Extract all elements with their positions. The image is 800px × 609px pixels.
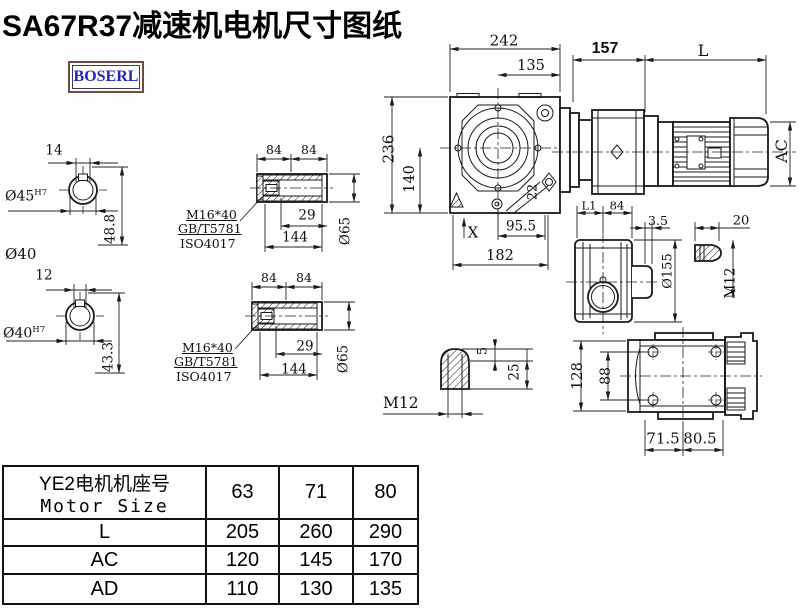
dim-flange-l1: L1 (582, 200, 597, 212)
dim-front-height: 236 (382, 135, 397, 164)
dim-bottom-height: 128 (571, 362, 586, 390)
dim-hollow-b-std1: GB/T5781 (174, 356, 238, 369)
dim-hollow-a-seg1: 84 (266, 144, 282, 157)
table-col-80: 80 (353, 466, 418, 519)
table-cell: 120 (206, 546, 279, 574)
table-cell: 135 (353, 574, 418, 604)
dim-shaft-b-bore: Ø40H7 (3, 326, 45, 341)
dim-hollow-b-dia: Ø65 (337, 345, 351, 373)
view-motor-side (552, 55, 796, 194)
table-cell: 205 (206, 519, 279, 546)
dim-hollow-a-std1: GB/T5781 (178, 223, 242, 236)
dim-shaft-b-height: 43.3 (102, 342, 116, 372)
dim-flange-dia: Ø155 (662, 253, 675, 288)
table-cell: 260 (279, 519, 353, 546)
dim-shaft-b-key-width: 12 (35, 269, 52, 283)
dim-front-center-bottom: 140 (403, 165, 418, 193)
page-title: SA67R37减速机电机尺寸图纸 (2, 1, 402, 45)
drawing-canvas: SA67R37减速机电机尺寸图纸 BOSERL 14 Ø45H7 48.8 Ø4… (0, 0, 800, 609)
table-header-cn: YE2电机机座号 (4, 469, 205, 496)
table-header-cell: YE2电机机座号 Motor Size (3, 466, 206, 519)
dim-hollow-a-dia: Ø65 (339, 217, 353, 245)
dim-plug-tip: 5 (477, 347, 490, 355)
table-row: AC 120 145 170 (3, 546, 418, 574)
dim-plug-thread-len: 25 (508, 363, 522, 380)
dim-motor-adapter-len: 157 (592, 40, 619, 58)
dim-plug-thread: M12 (383, 396, 419, 412)
dim-flange-cap-len: 20 (733, 215, 750, 228)
dim-hollow-b-std2: ISO4017 (176, 371, 232, 384)
dim-flange-thread: M12 (724, 267, 738, 298)
dim-flange-lip: 3.5 (648, 215, 668, 228)
dim-shaft-a-dia: Ø40 (5, 247, 36, 262)
brand-logo: BOSERL (72, 65, 140, 89)
dim-motor-len: L (698, 43, 709, 59)
table-row-label: AD (3, 574, 206, 604)
dim-bottom-left: 71.5 (646, 432, 679, 447)
table-cell: 170 (353, 546, 418, 574)
table-row-label: AC (3, 546, 206, 574)
dim-shaft-a-height: 48.8 (104, 214, 118, 244)
dim-hollow-b-screw: M16*40 (182, 342, 233, 355)
table-row: L 205 260 290 (3, 519, 418, 546)
table-cell: 145 (279, 546, 353, 574)
dim-motor-dia: AC (774, 139, 790, 163)
table-cell: 130 (279, 574, 353, 604)
dim-bottom-right: 80.5 (683, 432, 716, 447)
table-col-63: 63 (206, 466, 279, 519)
dim-hollow-a-depth: 29 (298, 209, 315, 223)
dim-front-rib: 22 (527, 184, 540, 201)
table-row-label: L (3, 519, 206, 546)
dim-hollow-a-seg2: 84 (301, 144, 317, 157)
table-cell: 290 (353, 519, 418, 546)
dim-hollow-a-screw: M16*40 (186, 209, 237, 222)
dim-front-foot-right: 95.5 (506, 220, 536, 234)
dim-bottom-inner: 88 (599, 367, 613, 385)
dim-hollow-b-length: 144 (281, 363, 307, 377)
table-row: AD 110 130 135 (3, 574, 418, 604)
dim-hollow-b-seg1: 84 (261, 272, 277, 285)
table-col-71: 71 (279, 466, 353, 519)
dim-hollow-a-length: 144 (282, 231, 308, 245)
dim-flange-seg: 84 (610, 200, 625, 212)
dim-front-foot-width: 182 (486, 249, 514, 264)
dim-hollow-b-seg2: 84 (296, 272, 312, 285)
table-header-en: Motor Size (4, 496, 205, 517)
dim-front-center-right: 135 (517, 59, 545, 74)
dim-hollow-a-std2: ISO4017 (180, 238, 236, 251)
table-header-row: YE2电机机座号 Motor Size 63 71 80 (3, 466, 418, 519)
dim-front-x-mark: X (468, 226, 479, 241)
table-cell: 110 (206, 574, 279, 604)
dim-hollow-b-depth: 29 (296, 340, 313, 354)
brand-logo-text: BOSERL (74, 68, 139, 86)
dim-front-width: 242 (490, 34, 519, 49)
dim-shaft-a-bore: Ø45H7 (5, 189, 47, 204)
dim-shaft-a-key-width: 14 (45, 144, 62, 158)
motor-size-table: YE2电机机座号 Motor Size 63 71 80 L 205 260 2… (2, 465, 419, 605)
